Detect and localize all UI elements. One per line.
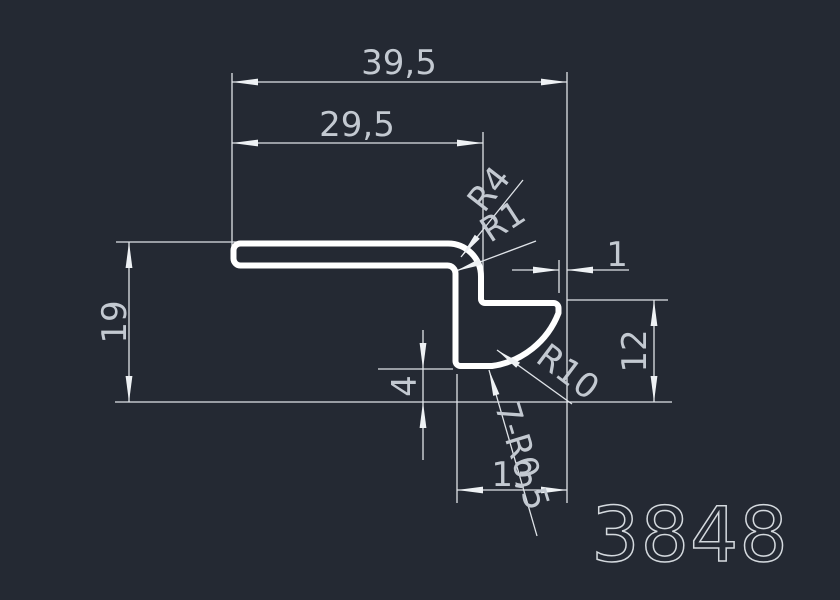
- arrow-foot-height-bottom: [420, 402, 427, 428]
- arrow-step-left: [533, 267, 559, 274]
- dimension-labels: 39,5 29,5 1 19 12 4 13 R4 R1 R10 7-R0,5: [95, 43, 655, 515]
- arrow-total-height-bottom: [126, 376, 133, 402]
- arrow-foot-width-left: [457, 487, 483, 494]
- drawing-number: 3848: [591, 490, 788, 579]
- arrow-step-right: [567, 267, 593, 274]
- arrow-upper-width-right: [457, 140, 483, 147]
- arrow-leader-corners: [489, 370, 499, 396]
- arrow-total-width-left: [232, 79, 258, 86]
- arrow-total-width-right: [541, 79, 567, 86]
- cad-drawing: 39,5 29,5 1 19 12 4 13 R4 R1 R10 7-R0,5 …: [0, 0, 840, 600]
- arrow-foot-height-top: [420, 343, 427, 369]
- arrow-right-height-top: [651, 300, 658, 326]
- dim-upper-width-label: 29,5: [319, 105, 395, 145]
- dim-total-width-label: 39,5: [361, 43, 437, 83]
- dim-foot-height-label: 4: [385, 375, 425, 397]
- dim-right-height-label: 12: [615, 329, 655, 372]
- dim-total-height-label: 19: [95, 300, 135, 343]
- profile-outline: [234, 244, 559, 367]
- arrow-upper-width-left: [232, 140, 258, 147]
- cad-canvas: 39,5 29,5 1 19 12 4 13 R4 R1 R10 7-R0,5 …: [0, 0, 840, 600]
- arrow-right-height-bottom: [651, 376, 658, 402]
- arrow-total-height-top: [126, 242, 133, 268]
- dim-step-label: 1: [606, 235, 628, 275]
